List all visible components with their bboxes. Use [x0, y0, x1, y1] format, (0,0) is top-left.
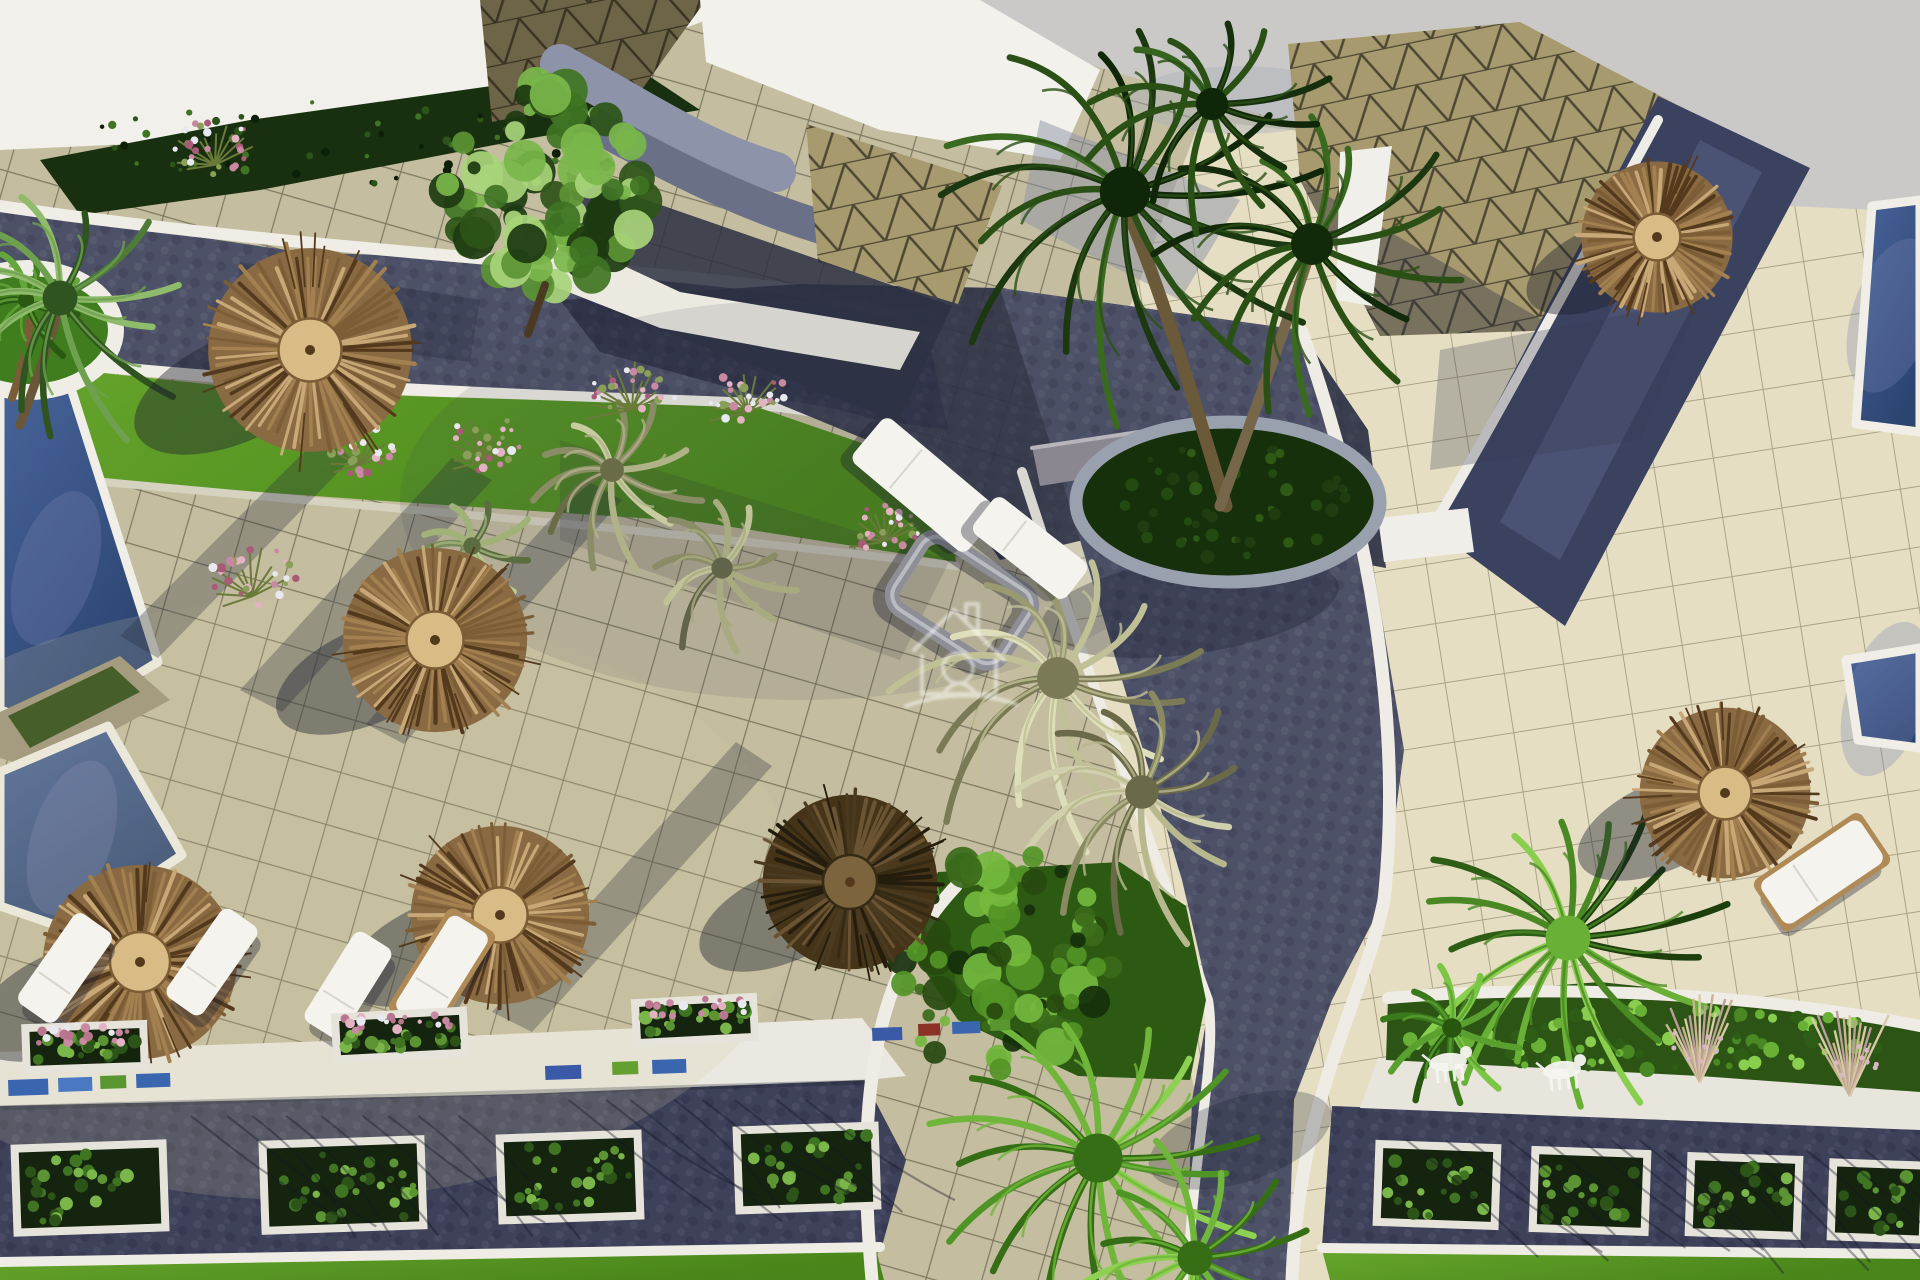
umbrella-pole: [1720, 788, 1730, 798]
aerial-resort-render: [0, 0, 1920, 1280]
color-chip: [8, 1079, 49, 1096]
planter-box: [10, 1139, 169, 1236]
color-chip: [652, 1059, 686, 1074]
color-chip: [990, 1019, 1010, 1031]
umbrella-pole: [305, 345, 315, 355]
umbrella-pole: [1652, 232, 1662, 242]
palm-crown: [600, 458, 624, 482]
color-chip: [952, 1021, 980, 1034]
planter-box: [1529, 1146, 1652, 1236]
curb: [1322, 1248, 1920, 1254]
planter-box: [21, 1020, 149, 1075]
planter-box: [1373, 1140, 1502, 1230]
color-chip: [918, 1023, 940, 1036]
umbrella-pole: [135, 957, 145, 967]
palm-crown: [43, 281, 78, 316]
palm-crown: [1100, 167, 1150, 217]
umbrella-pole: [430, 635, 440, 645]
umbrella-pole: [495, 910, 505, 920]
color-chip: [612, 1061, 638, 1075]
planter-box: [1827, 1158, 1920, 1243]
color-chip: [58, 1077, 92, 1092]
planter-box: [331, 1006, 469, 1063]
render-canvas: [0, 0, 1920, 1280]
color-chip: [100, 1075, 126, 1089]
planter-box: [631, 993, 759, 1048]
palm-crown: [1546, 916, 1591, 961]
color-chip: [872, 1027, 902, 1041]
palm-crown: [1196, 88, 1228, 120]
palm-crown: [1074, 1134, 1123, 1183]
palm-crown: [711, 557, 732, 578]
palm-crown: [1178, 1241, 1213, 1276]
color-chip: [136, 1073, 170, 1088]
umbrella-pole: [845, 877, 855, 887]
palm-crown: [1291, 223, 1333, 265]
palm-crown: [1037, 657, 1079, 699]
color-chip: [545, 1065, 581, 1080]
palm-crown: [1125, 775, 1159, 809]
palm-crown: [1442, 1018, 1462, 1038]
